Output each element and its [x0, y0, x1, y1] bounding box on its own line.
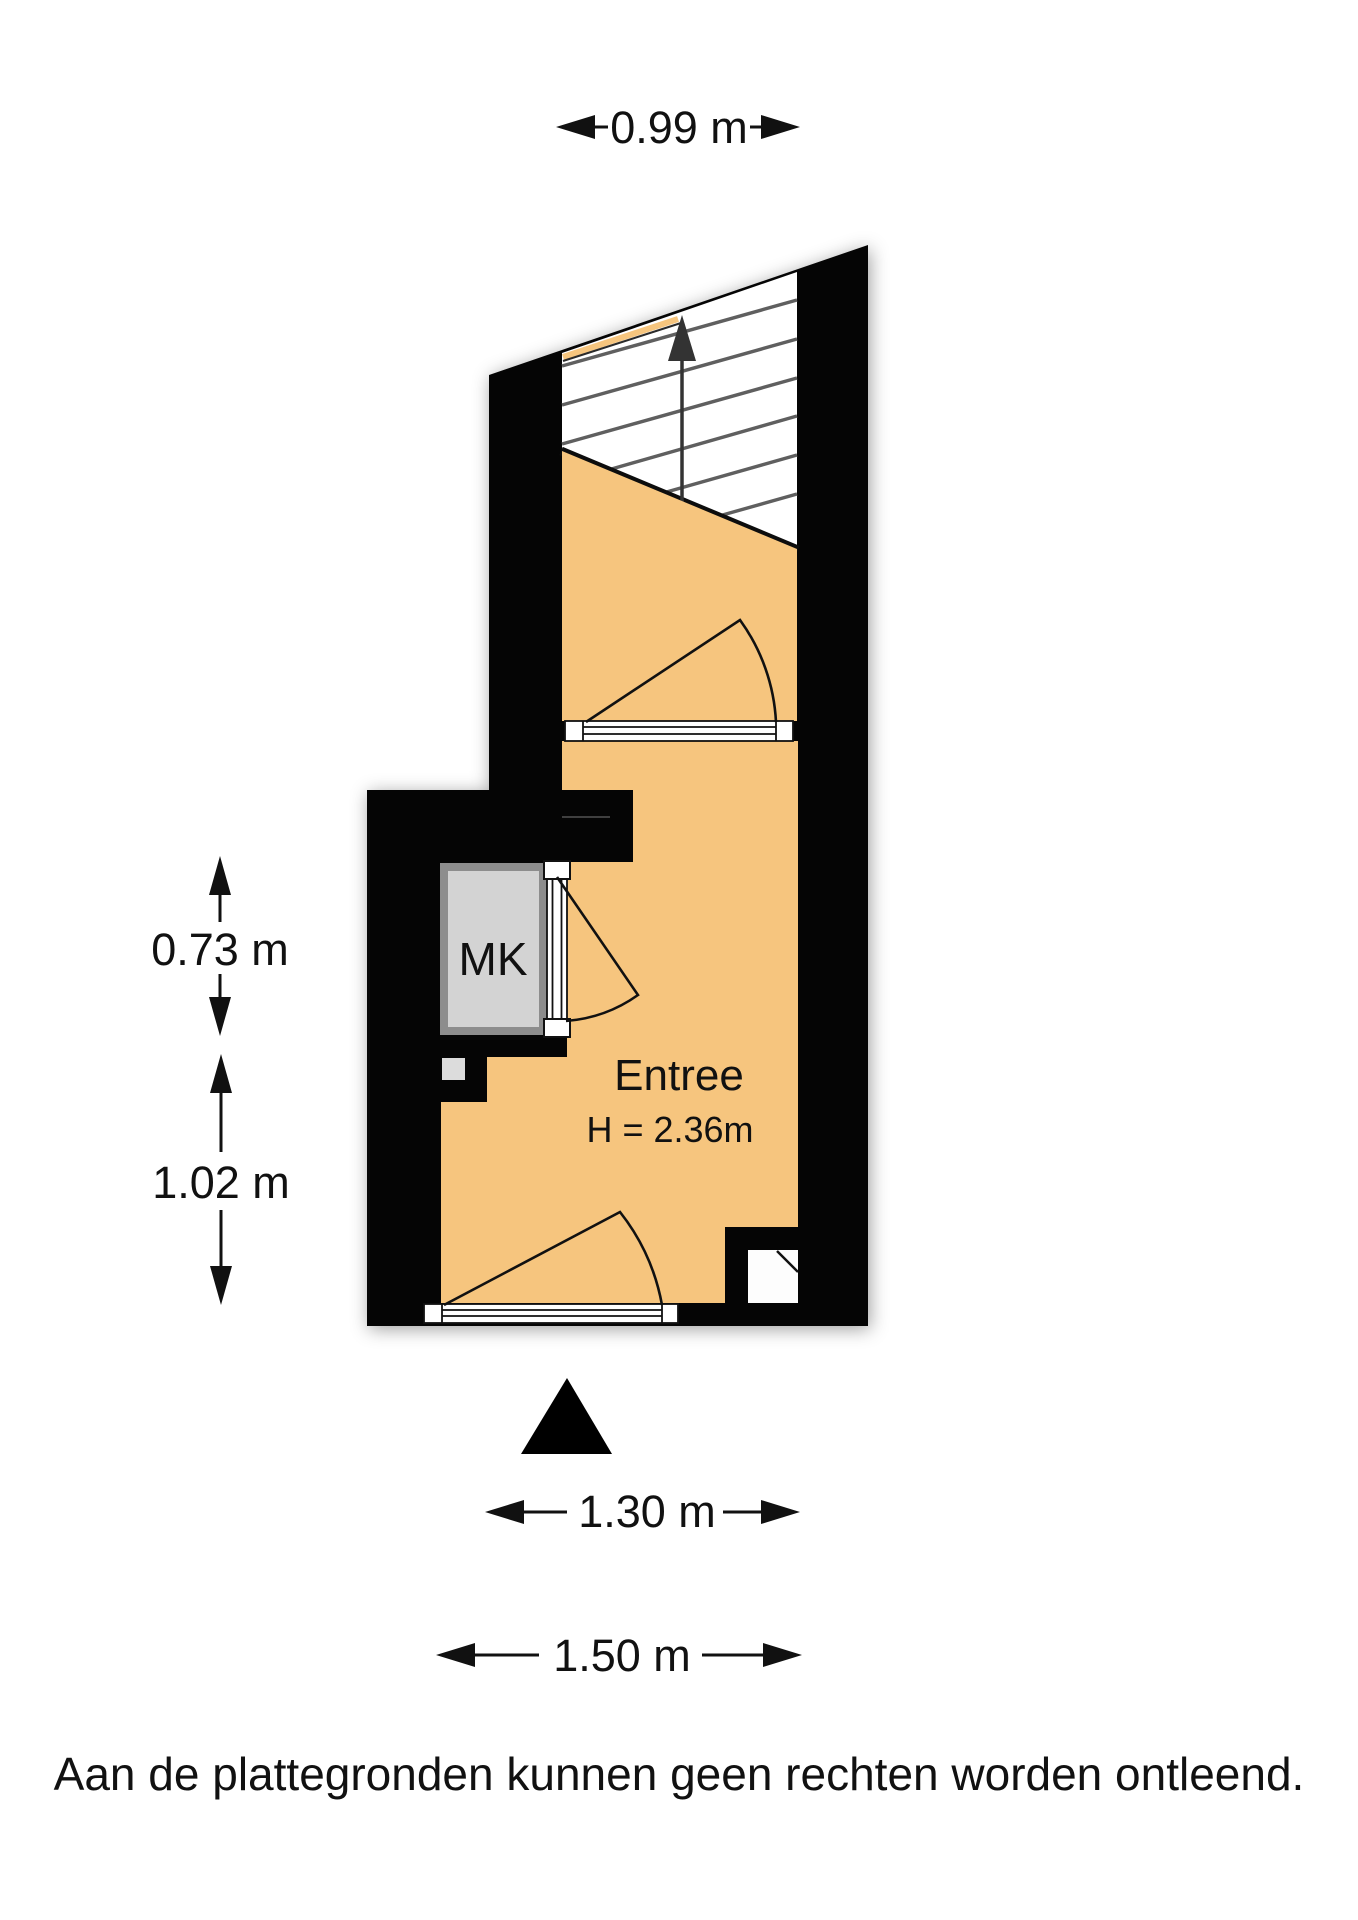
dim-left-lower: 1.02 m [152, 1054, 290, 1305]
dim-bottom-inner-label: 1.30 m [578, 1486, 716, 1537]
arrowhead-right-icon [761, 1500, 800, 1524]
dim-top-width-label: 0.99 m [610, 102, 748, 153]
wall-inset-square [442, 1058, 465, 1080]
arrowhead-down-icon [209, 997, 231, 1036]
dim-left-upper-label: 0.73 m [151, 924, 289, 975]
entrance-marker-triangle [521, 1378, 612, 1454]
niche-area [748, 1250, 798, 1303]
dim-bottom-outer-label: 1.50 m [553, 1630, 691, 1681]
mk-door-post-top [544, 861, 570, 879]
dim-left-lower-label: 1.02 m [152, 1157, 290, 1208]
entree-label: Entree [614, 1051, 744, 1100]
dim-top-width: 0.99 m [556, 102, 800, 153]
arrowhead-right-icon [761, 115, 800, 139]
entrance-threshold [424, 1304, 678, 1323]
hall-mid-floor [562, 741, 798, 790]
mk-label: MK [459, 933, 528, 985]
arrowhead-right-icon [763, 1643, 802, 1667]
niche [748, 1250, 798, 1303]
door-top-threshold [565, 721, 793, 741]
entree-height-label: H = 2.36m [586, 1109, 753, 1150]
floorplan: MK Entree H = 2.36m [367, 245, 868, 1326]
dim-bottom-outer: 1.50 m [436, 1630, 802, 1681]
dim-left-upper: 0.73 m [151, 856, 289, 1036]
floorplan-canvas: 0.99 m [0, 0, 1358, 1920]
dim-bottom-inner: 1.30 m [485, 1486, 800, 1537]
floorplan-page: 0.99 m [0, 0, 1358, 1920]
arrowhead-down-icon [210, 1266, 232, 1305]
disclaimer-text: Aan de plattegronden kunnen geen rechten… [54, 1748, 1305, 1800]
